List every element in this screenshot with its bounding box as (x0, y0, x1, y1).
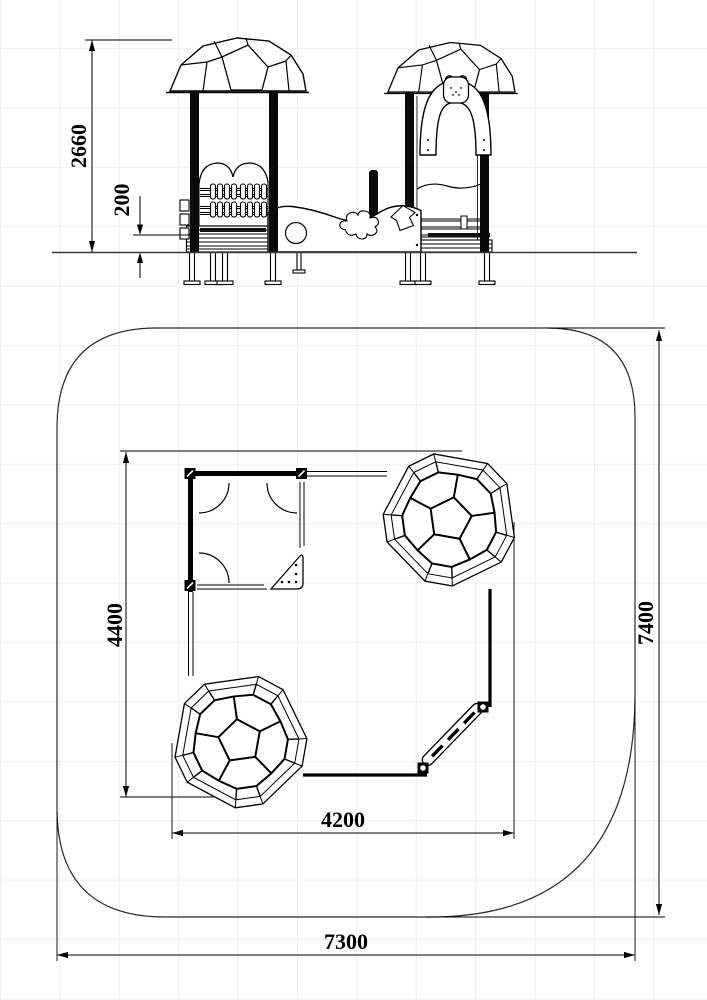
dimension-label: 2660 (66, 124, 91, 168)
left-deck (187, 226, 282, 252)
drawing-canvas: 2660 200 (0, 0, 707, 1000)
abacus-rail-upper (200, 184, 268, 199)
left-tower-right-post (269, 91, 278, 252)
technical-drawing: 2660 200 (0, 0, 707, 1000)
grid-background (0, 0, 707, 1000)
left-tower-left-post (190, 91, 199, 252)
dimension-label: 7400 (633, 601, 658, 645)
side-tabs (180, 200, 189, 239)
bear-figure (444, 76, 469, 103)
dimension-label: 4400 (102, 603, 127, 647)
dimension-label: 200 (109, 184, 134, 217)
dimension-label: 4200 (321, 807, 365, 832)
abacus-rail-lower (200, 202, 268, 217)
dimension-label: 7300 (324, 929, 368, 954)
